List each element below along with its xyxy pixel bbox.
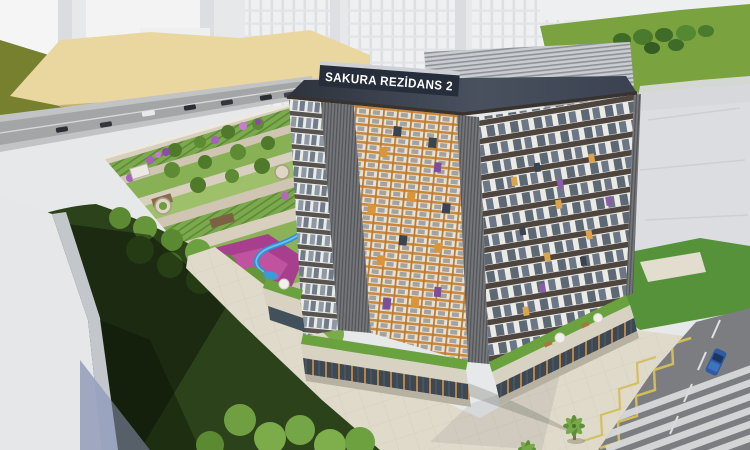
main-tower: SAKURA REZİDANS 2 [263,42,641,407]
round-planter [275,165,289,179]
architectural-render: SAKURA REZİDANS 2 [0,0,750,450]
planter-shrub [159,202,167,210]
umbrella [555,333,565,343]
tower-face-lattice [354,105,468,362]
umbrella [594,314,603,323]
render-stage: SAKURA REZİDANS 2 [0,0,750,450]
umbrella [279,279,289,289]
